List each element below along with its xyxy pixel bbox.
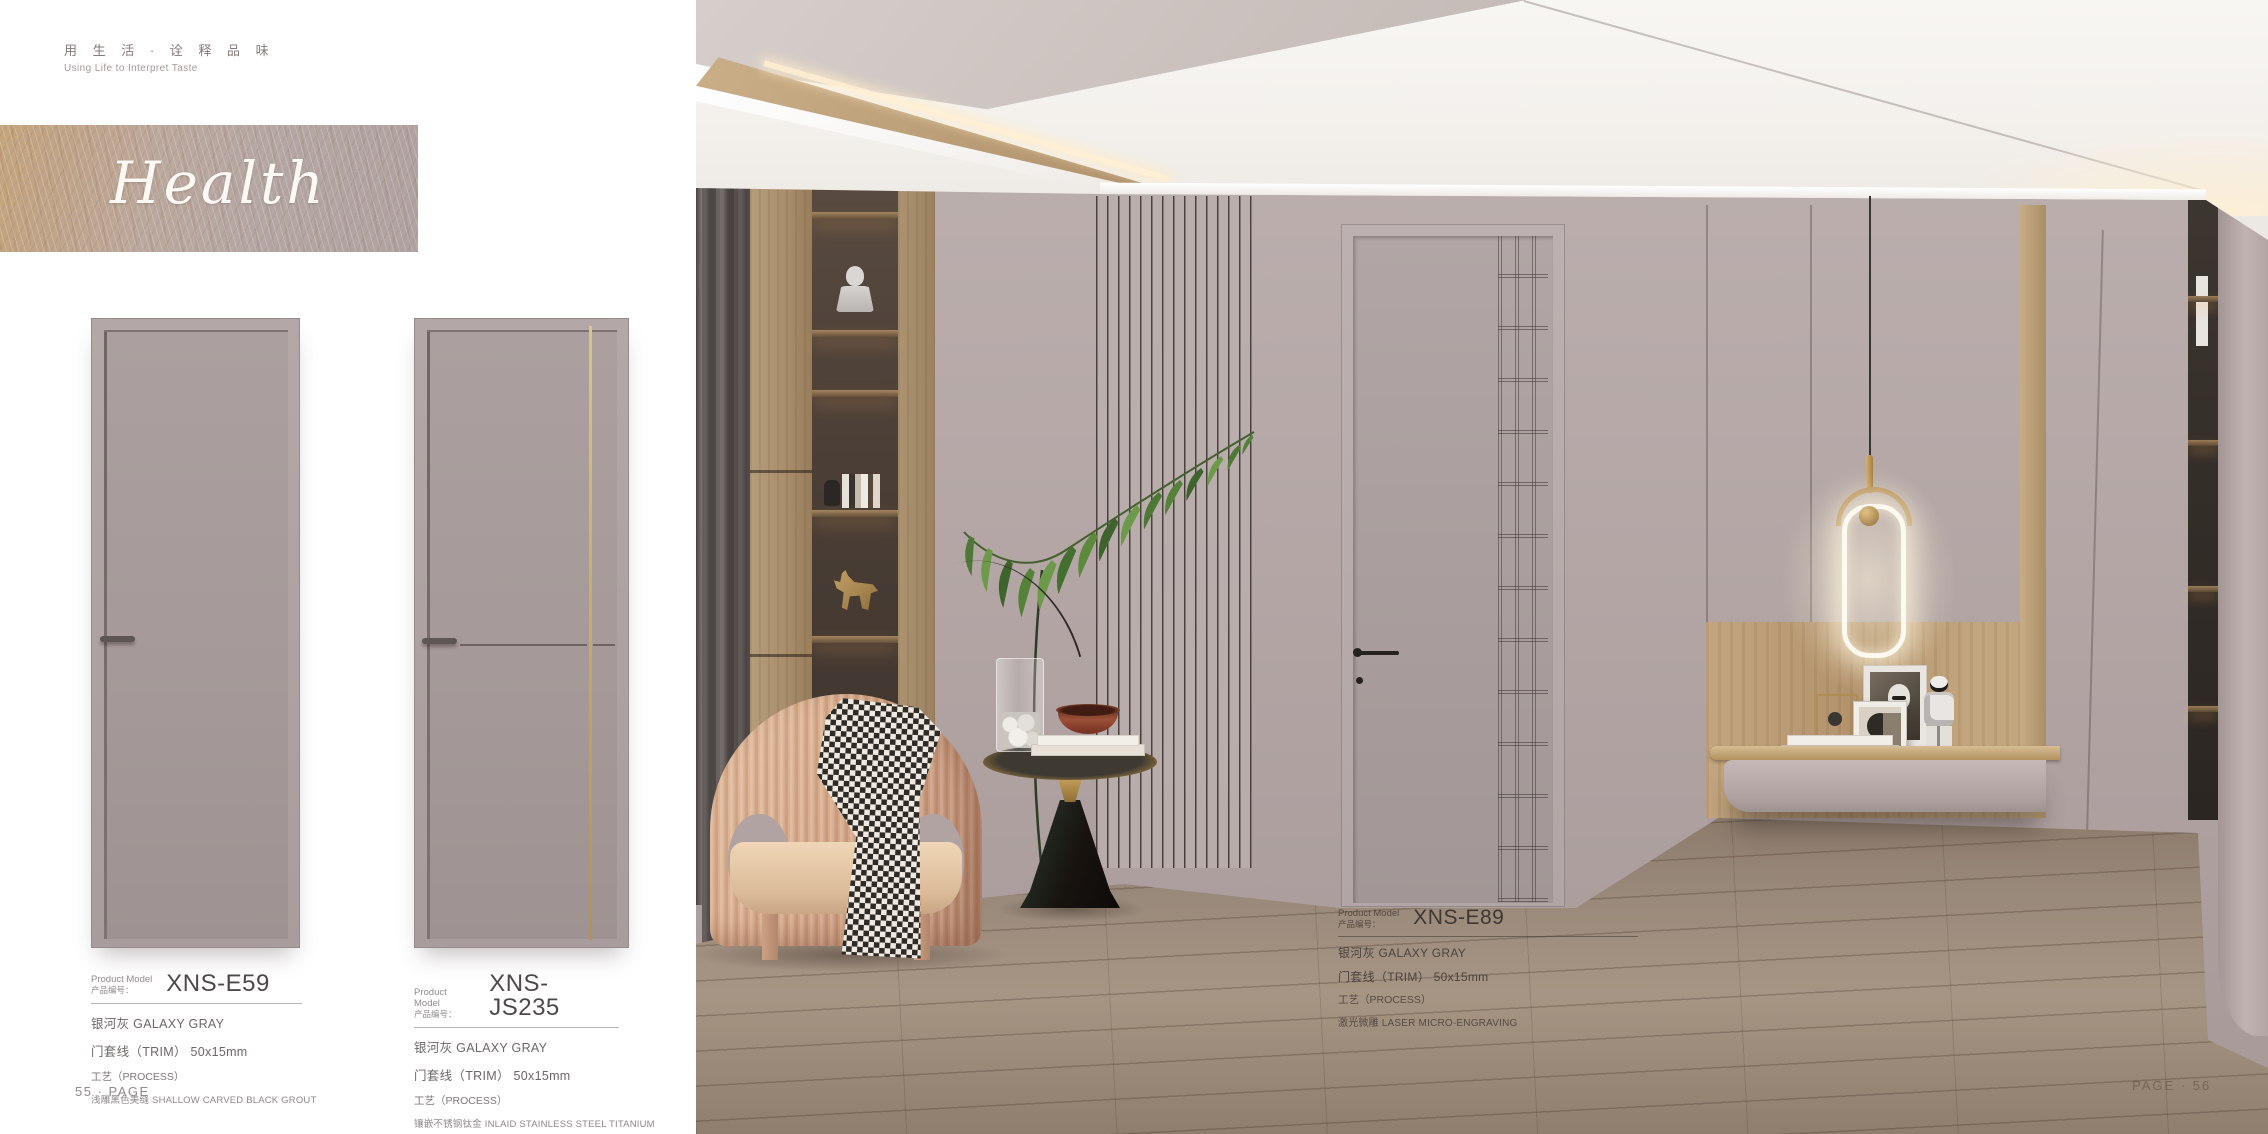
- spec-trim: 门套线（TRIM） 50x15mm: [1338, 968, 1668, 985]
- catalog-spread: 用 生 活 · 诠 释 品 味 Using Life to Interpret …: [0, 0, 2268, 1134]
- section-title: Health: [110, 149, 410, 217]
- model-row: Product Model 产品编号： XNS-E89: [1338, 906, 1638, 937]
- shelf-board: [812, 636, 898, 643]
- page-number-right: PAGE · 56: [2132, 1078, 2211, 1093]
- door-groove-stub: [593, 644, 615, 646]
- books: [842, 474, 884, 508]
- door-handle: [422, 638, 457, 644]
- model-row: Product Model 产品编号： XNS-JS235: [414, 972, 619, 1028]
- model-label-en: Product Model: [91, 974, 152, 985]
- armchair-leg: [762, 914, 778, 960]
- door-top-gap: [104, 330, 288, 332]
- wall-panel-seam: [2086, 230, 2104, 830]
- white-pebbles: [1000, 712, 1040, 748]
- shelf-board: [2188, 440, 2218, 446]
- interior-photo: Product Model 产品编号： XNS-E89 银河灰 GALAXY G…: [696, 0, 2268, 1134]
- tagline-english: Using Life to Interpret Taste: [64, 63, 275, 74]
- door-image-xns-e59: [91, 318, 300, 948]
- tall-book: [2196, 276, 2208, 346]
- spec-color: 银河灰 GALAXY GRAY: [1338, 944, 1668, 961]
- bust-statue: [846, 266, 864, 286]
- spec-color: 银河灰 GALAXY GRAY: [414, 1037, 674, 1056]
- door-groove-line: [460, 644, 587, 646]
- model-label: Product Model 产品编号：: [414, 987, 475, 1020]
- shelf-board: [812, 330, 898, 337]
- helmet-visor: [1892, 696, 1906, 700]
- bust-statue-body: [836, 286, 874, 312]
- product-label-xns-e89: Product Model 产品编号： XNS-E89 银河灰 GALAXY G…: [1338, 906, 1668, 1029]
- door-hinge-gap: [104, 330, 107, 939]
- deer-figurine: [834, 570, 878, 610]
- tagline-chinese: 用 生 活 · 诠 释 品 味: [64, 40, 275, 59]
- spec-process: 工艺（PROCESS）: [1338, 992, 1668, 1007]
- plant-rachis: [964, 432, 1254, 563]
- table-book: [1038, 736, 1138, 745]
- model-label-zh: 产品编号：: [414, 1009, 475, 1020]
- toy-figurine-body: [1924, 692, 1954, 726]
- ornament-sphere: [1828, 712, 1842, 726]
- shelf-board: [812, 390, 898, 397]
- table-book: [1032, 745, 1144, 755]
- brand-tagline: 用 生 活 · 诠 释 品 味 Using Life to Interpret …: [64, 40, 275, 74]
- spec-detail: 镶嵌不锈钢钛金 INLAID STAINLESS STEEL TITANIUM: [414, 1116, 674, 1130]
- page-number-left: 55 · PAGE: [75, 1084, 150, 1099]
- floating-vanity-top: [1710, 746, 2060, 760]
- model-id: XNS-JS235: [489, 972, 619, 1020]
- book-stack: [1788, 736, 1892, 746]
- spec-color: 银河灰 GALAXY GRAY: [91, 1013, 341, 1032]
- pendant-knob: [1859, 506, 1879, 526]
- wall-panel-seam: [1706, 205, 1708, 623]
- model-row: Product Model 产品编号： XNS-E59: [91, 972, 302, 1004]
- armchair-seat: [730, 842, 962, 914]
- glass-vase: [996, 658, 1044, 752]
- model-label: Product Model 产品编号：: [1338, 908, 1399, 930]
- shelf-board: [812, 212, 898, 219]
- bowl-rim: [1056, 704, 1120, 716]
- door-image-xns-js235: [414, 318, 629, 948]
- bear-figurine: [824, 480, 840, 506]
- wood-trim-strip: [2020, 205, 2046, 818]
- model-label: Product Model 产品编号：: [91, 974, 152, 996]
- model-id: XNS-E59: [166, 972, 270, 996]
- pendant-cord: [1869, 196, 1871, 458]
- shelf-board: [2188, 706, 2218, 712]
- spec-trim: 门套线（TRIM） 50x15mm: [91, 1041, 341, 1060]
- toy-figurine-head: [1930, 676, 1948, 692]
- floating-vanity-drawer: [1724, 760, 2046, 812]
- shelf-board: [2188, 296, 2218, 302]
- spec-detail: 激光微雕 LASER MICRO-ENGRAVING: [1338, 1014, 1668, 1029]
- spec-process: 工艺（PROCESS）: [91, 1069, 341, 1084]
- model-label-zh: 产品编号：: [1338, 919, 1399, 930]
- door-handle: [100, 636, 135, 642]
- product-label-xns-js235: Product Model 产品编号： XNS-JS235 银河灰 GALAXY…: [414, 972, 674, 1134]
- shelf-board: [2188, 586, 2218, 592]
- spec-trim: 门套线（TRIM） 50x15mm: [414, 1065, 674, 1084]
- model-id: XNS-E89: [1413, 906, 1504, 930]
- titanium-inlay-line: [589, 326, 592, 940]
- pendant-light-tube: [1842, 504, 1906, 658]
- door-hinge-gap: [427, 330, 430, 939]
- spec-process: 工艺（PROCESS）: [414, 1093, 674, 1108]
- model-label-zh: 产品编号：: [91, 985, 152, 996]
- door-slab: [104, 330, 288, 939]
- cabinet-seam: [750, 470, 812, 473]
- model-label-en: Product Model: [1338, 908, 1399, 919]
- cabinet-seam: [750, 654, 812, 657]
- shelf-board: [812, 510, 898, 517]
- section-banner: Health: [0, 125, 418, 252]
- model-label-en: Product Model: [414, 987, 475, 1009]
